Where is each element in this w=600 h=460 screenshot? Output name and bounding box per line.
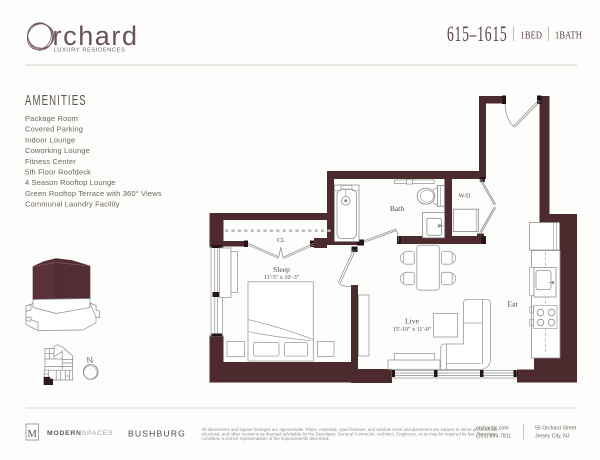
svg-text:Jersey City, NJ: Jersey City, NJ (535, 434, 570, 440)
svg-text:W/D: W/D (458, 193, 471, 200)
svg-text:55 Orchard Street: 55 Orchard Street (535, 426, 577, 432)
svg-text:rchard: rchard (53, 21, 139, 51)
svg-text:CL: CL (277, 237, 285, 244)
svg-text:MODERNSPACES: MODERNSPACES (47, 430, 113, 437)
svg-text:M: M (28, 429, 38, 440)
svg-text:1BATH: 1BATH (555, 30, 582, 41)
svg-text:615–1615: 615–1615 (447, 22, 508, 46)
svg-text:Covered Parking: Covered Parking (25, 125, 83, 134)
svg-text:Package Room: Package Room (25, 114, 78, 123)
svg-text:Sleep: Sleep (273, 265, 290, 274)
svg-text:5th Floor Roofdeck: 5th Floor Roofdeck (25, 168, 91, 177)
svg-text:Fitness Center: Fitness Center (25, 157, 76, 166)
svg-text:LUXURY RESIDENCES: LUXURY RESIDENCES (54, 48, 126, 54)
svg-text:Green Rooftop Terrace with 360: Green Rooftop Terrace with 360° Views (25, 189, 162, 198)
svg-text:constitute a correct represent: constitute a correct representation of t… (202, 436, 330, 441)
svg-text:Coworking Lounge: Coworking Lounge (25, 146, 90, 155)
svg-text:Live: Live (405, 317, 420, 326)
svg-text:(201) 899-7811: (201) 899-7811 (476, 434, 511, 440)
svg-text:N: N (86, 355, 94, 366)
svg-text:BUSHBURG: BUSHBURG (128, 429, 186, 439)
svg-text:Indoor Lounge: Indoor Lounge (25, 135, 75, 144)
svg-text:1BED: 1BED (521, 30, 543, 41)
svg-text:15′-10″ x 11′-0″: 15′-10″ x 11′-0″ (393, 327, 432, 333)
svg-text:AMENITIES: AMENITIES (25, 92, 87, 109)
svg-text:Communal Laundry Facility: Communal Laundry Facility (25, 200, 120, 209)
svg-text:orchardjc.com: orchardjc.com (476, 426, 509, 432)
svg-text:Eat: Eat (507, 300, 518, 309)
svg-text:4 Season Rooftop Lounge: 4 Season Rooftop Lounge (25, 178, 116, 187)
svg-text:11′-5″ x 10′-3″: 11′-5″ x 10′-3″ (264, 275, 300, 281)
svg-text:Bath: Bath (390, 204, 405, 213)
